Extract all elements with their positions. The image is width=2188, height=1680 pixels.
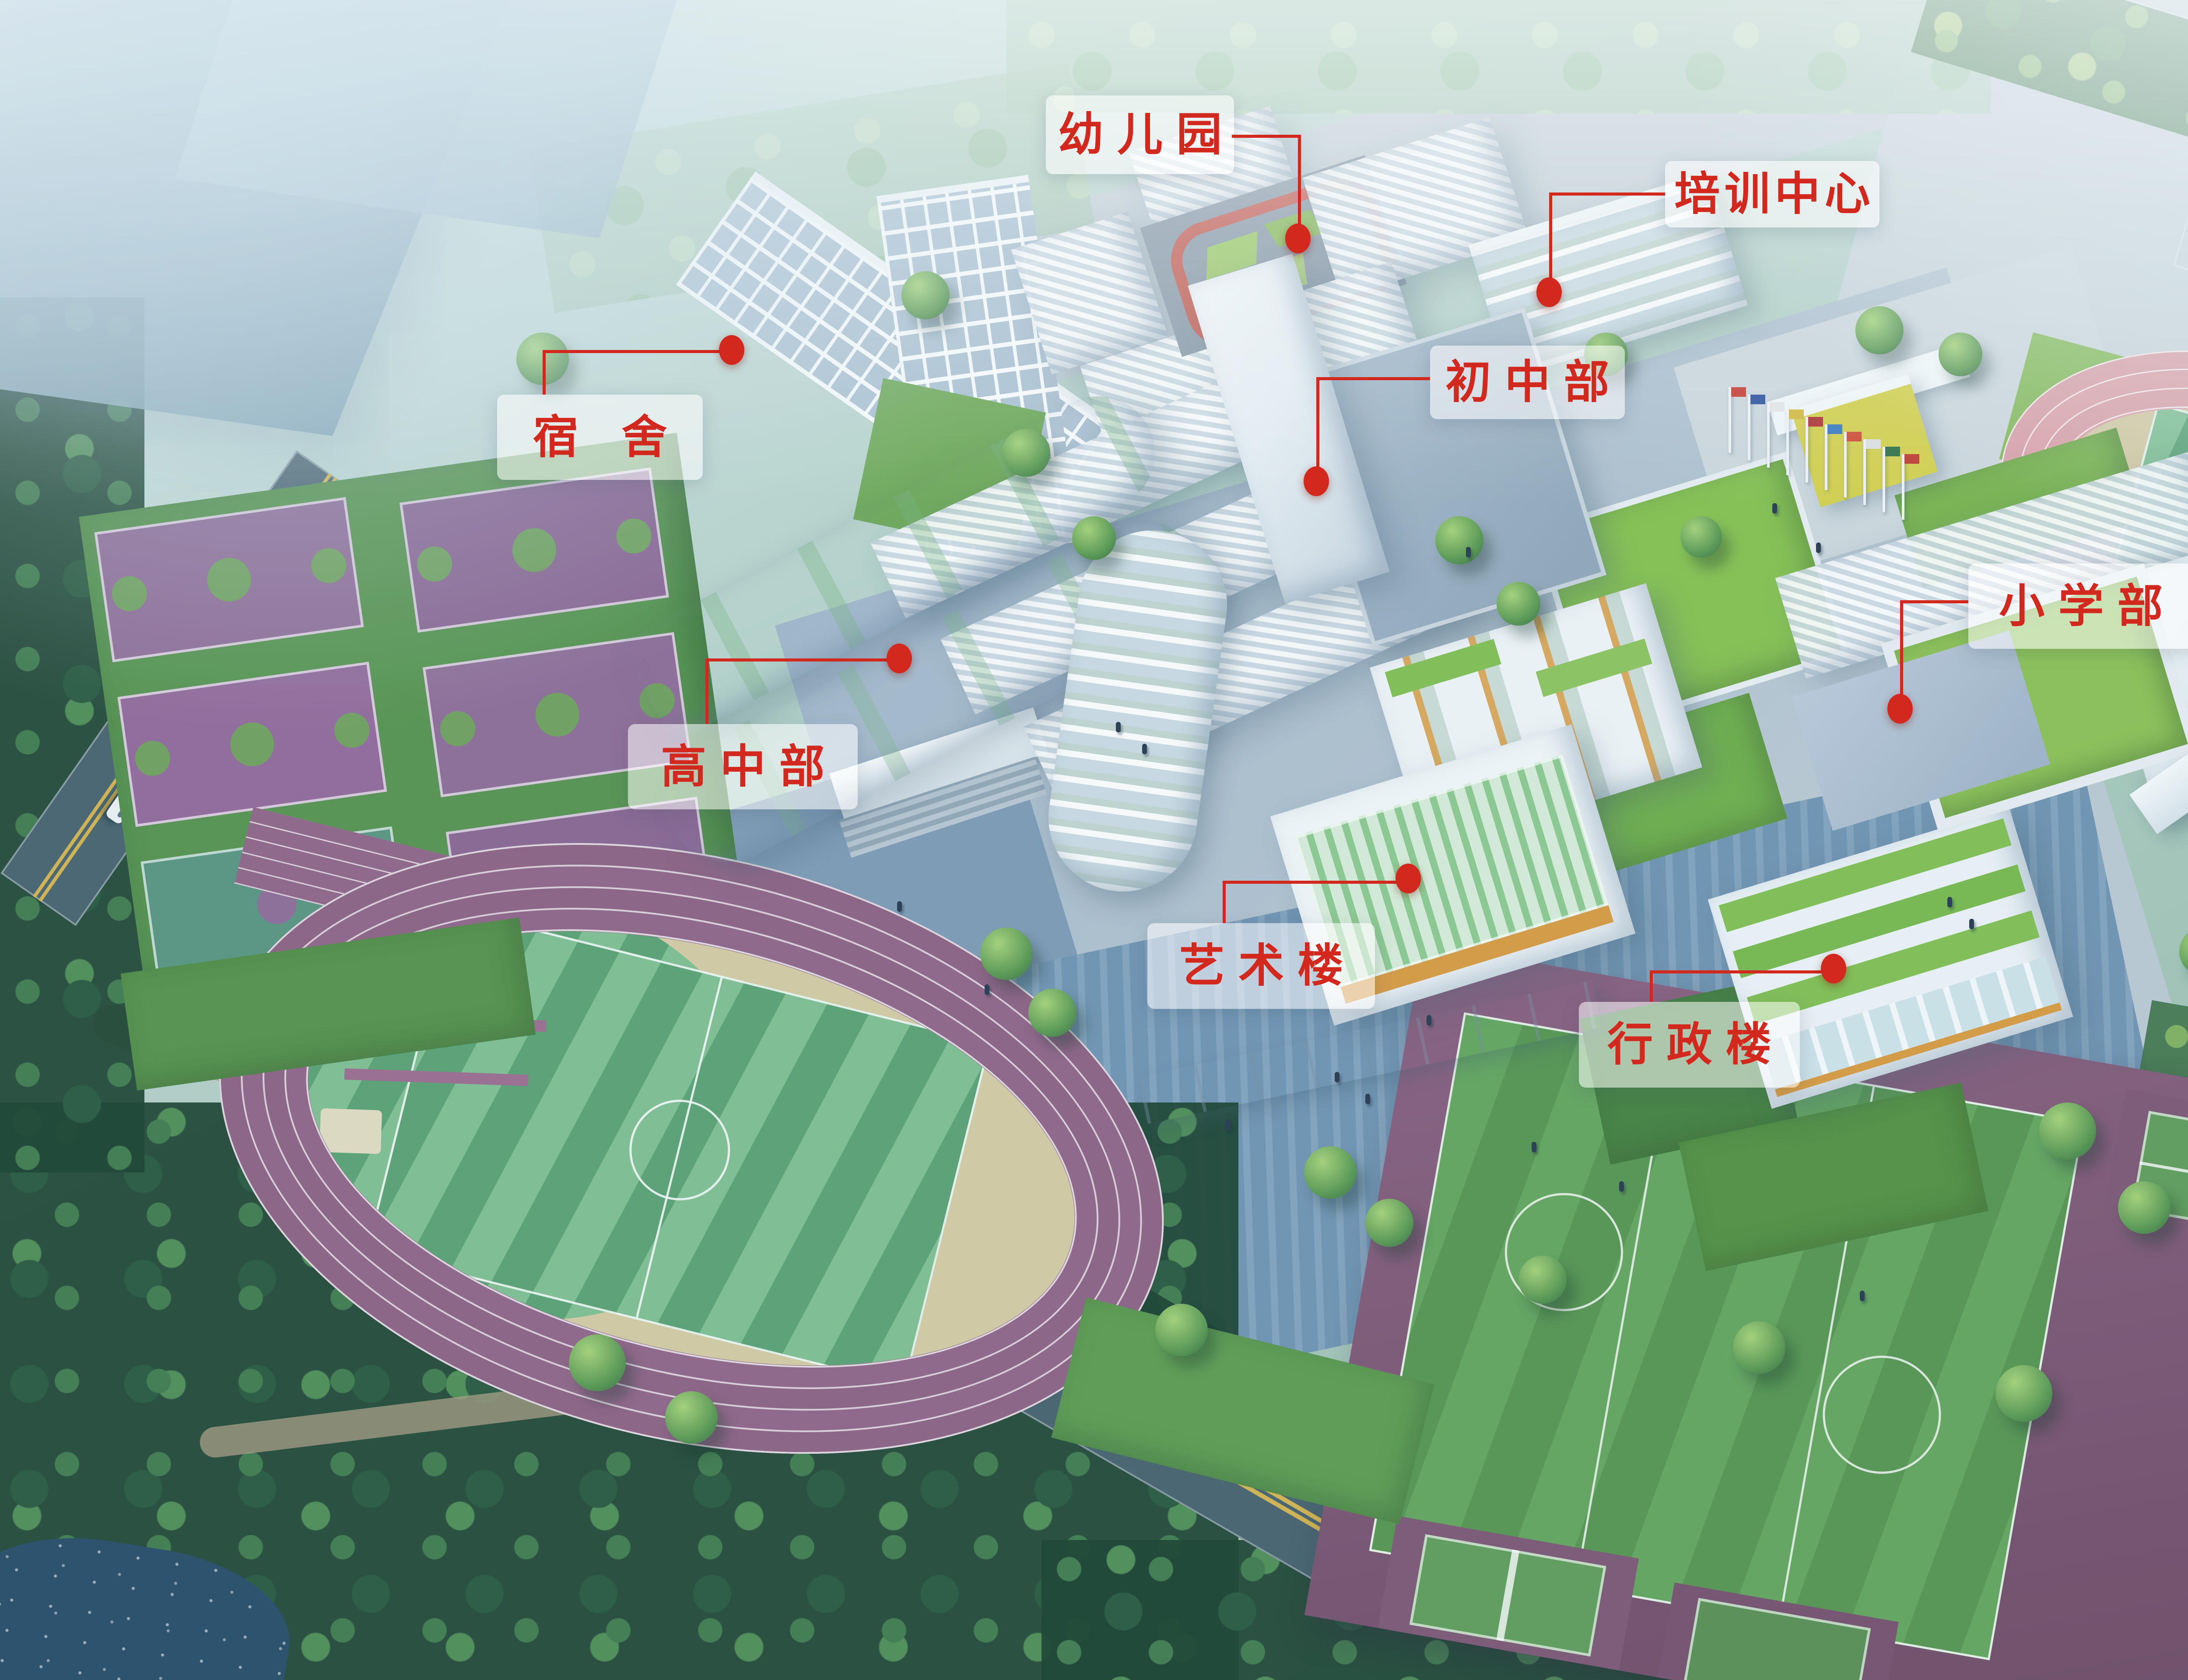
person (897, 901, 902, 912)
person (1365, 1094, 1370, 1104)
leader-line (543, 350, 727, 353)
tree (1680, 516, 1722, 558)
flag-pole (1786, 409, 1789, 475)
label-text: 宿舍 (490, 415, 710, 460)
leader-line (1223, 881, 1400, 884)
label-text: 幼儿园 (1045, 112, 1236, 157)
person (1816, 542, 1821, 553)
tree (1002, 429, 1050, 477)
leader-dot (1821, 954, 1846, 983)
flag-pole (1844, 432, 1847, 497)
tree (2039, 1102, 2096, 1159)
flag-pole (1902, 454, 1904, 520)
leader-dot (1536, 277, 1562, 307)
flag-pole (1883, 447, 1885, 512)
tree (1733, 1321, 1785, 1374)
leader-line (1232, 135, 1298, 138)
leader-dot (1304, 466, 1329, 496)
flag (1750, 395, 1765, 404)
flag (1808, 417, 1823, 427)
tree (1072, 516, 1116, 560)
leader-line (543, 350, 546, 395)
flag (1885, 447, 1900, 456)
campus-aerial-rendering: 幼儿园培训中心宿舍初中部小学部高中部艺术楼行政楼 (0, 0, 2188, 1680)
label-text: 高中部 (647, 744, 838, 790)
flag-pole (1748, 395, 1750, 460)
leader-dot (1887, 694, 1913, 724)
leader-line (1549, 192, 1665, 196)
tree (1518, 1256, 1567, 1304)
person (1116, 722, 1121, 732)
tree (2179, 927, 2188, 976)
tree (1155, 1304, 1208, 1356)
leader-dot (719, 335, 744, 365)
tree (665, 1391, 718, 1444)
flag (1770, 402, 1785, 412)
person (1335, 1072, 1339, 1082)
flag-pole (1729, 387, 1731, 453)
person (1619, 1181, 1624, 1192)
label-text: 行政楼 (1594, 1022, 1785, 1067)
label-admin-building: 行政楼 (1579, 1002, 1800, 1088)
tree (1995, 1365, 2052, 1422)
flag-pole (1863, 439, 1866, 505)
flag-pole (1825, 424, 1827, 490)
leader-line (705, 658, 708, 724)
tree (1939, 332, 1982, 376)
person (1969, 919, 1974, 929)
label-text: 艺术楼 (1166, 943, 1357, 989)
leader-line (1650, 970, 1653, 1002)
person (1466, 547, 1471, 557)
tree (1435, 516, 1483, 564)
tree (901, 271, 950, 319)
flag (1789, 409, 1804, 419)
label-art-building: 艺术楼 (1147, 923, 1375, 1009)
person (1427, 1015, 1431, 1025)
leader-line (1298, 135, 1301, 238)
label-senior-high-section: 高中部 (628, 724, 858, 809)
flag (1731, 387, 1746, 397)
leader-line (1316, 377, 1430, 380)
person (1772, 503, 1777, 514)
tree (1028, 989, 1076, 1037)
person (1225, 1120, 1230, 1130)
person (1142, 744, 1147, 754)
person (985, 984, 989, 995)
flag (1904, 454, 1919, 464)
tree (569, 1334, 626, 1391)
leader-line (1316, 377, 1319, 478)
label-dormitory: 宿舍 (497, 395, 703, 480)
tree (1497, 582, 1540, 626)
leader-line (1650, 970, 1826, 973)
label-primary-school-section: 小学部 (1968, 563, 2188, 649)
leader-line (1900, 600, 1903, 705)
label-text: 培训中心 (1670, 171, 1875, 217)
leader-line (1900, 600, 1968, 603)
label-text: 小学部 (1985, 584, 2177, 629)
tree (1304, 1146, 1357, 1199)
person (1860, 1291, 1865, 1301)
label-kindergarten: 幼儿园 (1046, 95, 1234, 174)
basketball-court (400, 467, 669, 633)
person (1947, 897, 1952, 907)
tree (1855, 306, 1904, 354)
leader-dot (887, 644, 912, 673)
sand-pit (319, 1108, 382, 1154)
label-junior-high-section: 初中部 (1430, 346, 1625, 419)
leader-dot (1285, 224, 1311, 253)
leader-line (705, 658, 894, 661)
flag-pole (1806, 417, 1808, 483)
flag (1847, 432, 1862, 441)
flag (1827, 424, 1842, 434)
flag (1866, 439, 1881, 449)
label-training-center: 培训中心 (1665, 161, 1879, 227)
basketball-court (94, 497, 364, 662)
tree (1365, 1199, 1413, 1247)
flag-pole (1767, 402, 1770, 468)
leader-dot (1396, 864, 1421, 893)
tree (980, 927, 1033, 980)
tree (2118, 1181, 2170, 1234)
person (1532, 1142, 1536, 1152)
label-text: 初中部 (1432, 360, 1623, 405)
leader-line (1223, 881, 1226, 923)
leader-line (1549, 192, 1552, 289)
